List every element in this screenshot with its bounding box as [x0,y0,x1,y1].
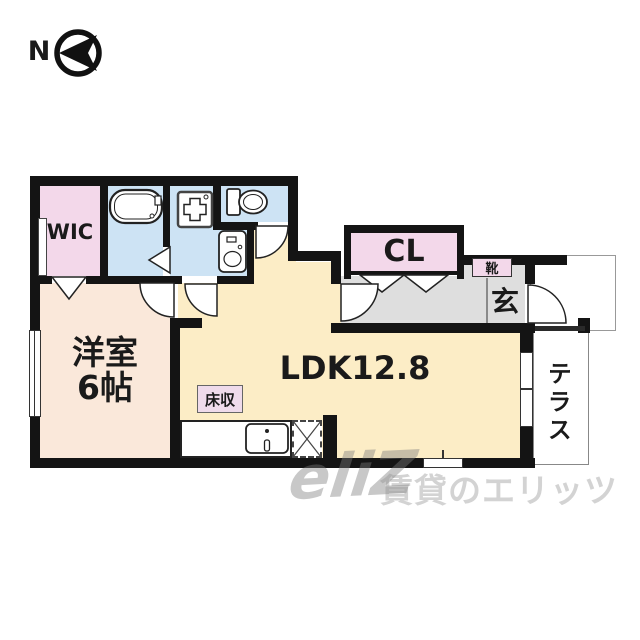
western-room-size: 6帖 [40,371,170,406]
ldk-label: LDK12.8 [230,352,480,386]
terrace-label: テラス [544,348,569,458]
entrance-door-arc [528,285,566,323]
refrigerator-space-icon [293,421,321,457]
kitchen-sink-icon [246,424,288,453]
western-room-door-arc [140,283,174,317]
western-room-name: 洋室 [40,336,170,371]
floor-storage: 床収 [197,385,243,413]
closet-label: CL [356,236,452,268]
shoe-cabinet: 靴 [472,258,512,277]
compass-label: N [26,38,52,66]
corridor-door-arc [341,284,378,321]
shoe-cabinet-label: 靴 [485,258,498,277]
floorplan: 靴 床収 N WIC CL 玄 洋室 6帖 LDK12.8 テラス eliZ 賃… [0,0,640,640]
washroom-door-arc [185,284,217,316]
toilet-door-arc [256,226,288,258]
floor-storage-label: 床収 [205,389,235,410]
doors-and-fixtures [0,0,640,640]
bathroom-folding-door [149,247,170,273]
washbasin-icon [219,231,246,272]
western-room-label: 洋室 6帖 [40,336,170,405]
entrance-label: 玄 [488,287,522,316]
north-arrow-icon [57,32,99,74]
wic-folding-door [52,277,86,299]
washing-machine-pan-icon [178,192,212,227]
closet-folding-door [404,275,448,292]
wic-label: WIC [40,221,100,243]
toilet-icon [227,189,267,215]
bathtub-icon [110,190,162,223]
